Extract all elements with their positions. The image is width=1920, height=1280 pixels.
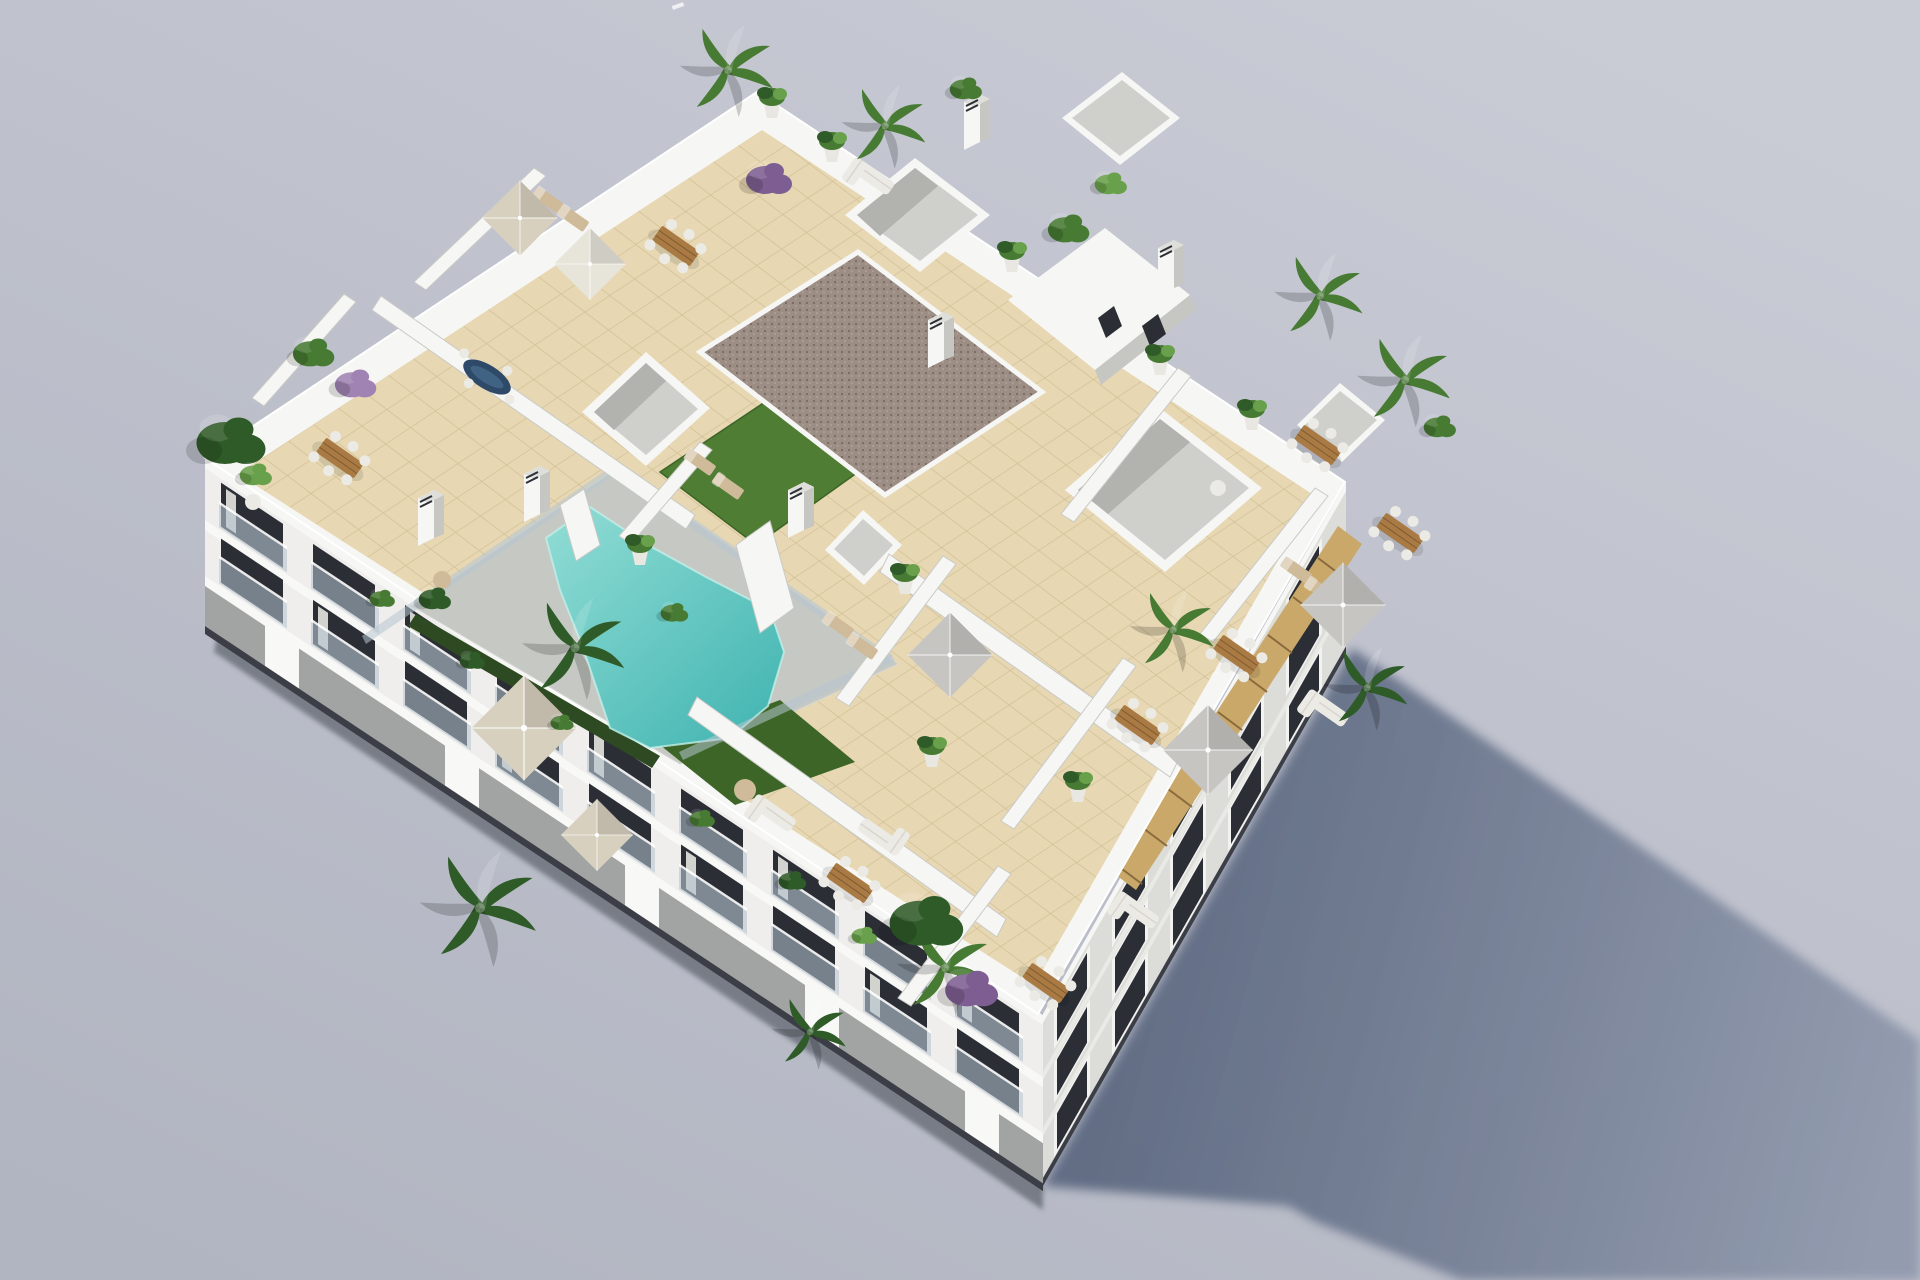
round-table (245, 494, 261, 510)
round-table (1210, 480, 1226, 496)
round-table (433, 571, 451, 589)
architectural-render (0, 0, 1920, 1280)
coffee-table (734, 779, 756, 801)
render-stage (0, 0, 1920, 1280)
